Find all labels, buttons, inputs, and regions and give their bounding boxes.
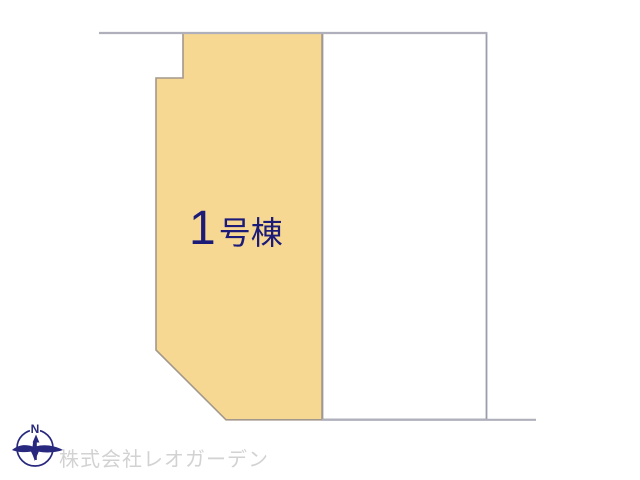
adjacent-plot-region bbox=[323, 33, 487, 420]
building-number: 1 bbox=[189, 202, 216, 255]
compass-north-label: N bbox=[31, 422, 40, 436]
company-logo-text: 株式会社レオガーデン bbox=[59, 448, 269, 471]
site-plan-drawing: 1号棟 N 株式会社レオガーデン bbox=[0, 0, 640, 480]
building-suffix: 号棟 bbox=[219, 215, 283, 251]
site-plan-canvas: 1号棟 N 株式会社レオガーデン bbox=[0, 0, 640, 480]
compass-icon: N bbox=[12, 422, 63, 466]
